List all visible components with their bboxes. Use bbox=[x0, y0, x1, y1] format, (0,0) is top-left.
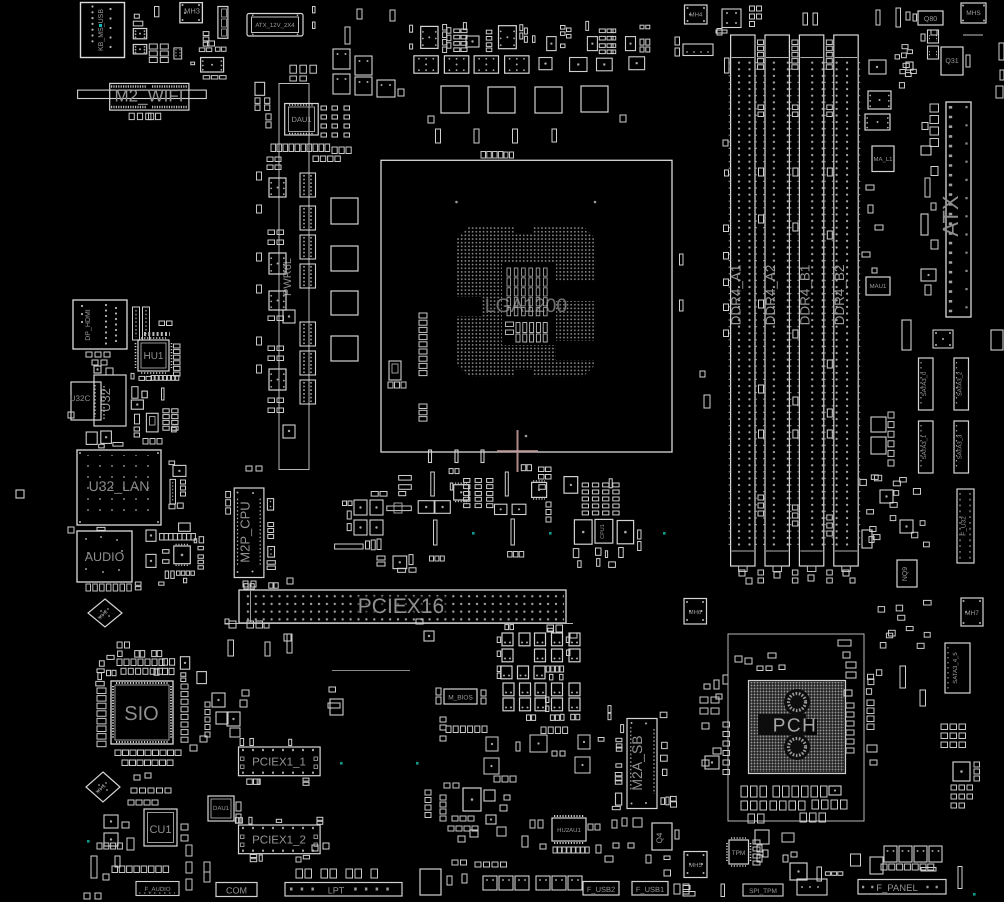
svg-text:COM: COM bbox=[226, 886, 247, 896]
svg-text:F_U32: F_U32 bbox=[961, 516, 968, 536]
svg-text:NQ9: NQ9 bbox=[902, 567, 909, 582]
svg-text:SIO: SIO bbox=[124, 703, 158, 725]
svg-text:MH7: MH7 bbox=[965, 610, 979, 617]
svg-text:M2P_CPU: M2P_CPU bbox=[238, 501, 253, 562]
svg-text:DAU1: DAU1 bbox=[213, 805, 230, 812]
svg-text:F_AUDIO: F_AUDIO bbox=[144, 886, 170, 893]
svg-text:F_USB1: F_USB1 bbox=[636, 885, 664, 894]
svg-text:DDR4_A1: DDR4_A1 bbox=[729, 265, 744, 326]
svg-text:DAU1: DAU1 bbox=[291, 115, 311, 124]
svg-text:F_USB2: F_USB2 bbox=[587, 885, 615, 894]
svg-text:M2_WIFI: M2_WIFI bbox=[115, 87, 184, 106]
svg-text:SPI_TPM: SPI_TPM bbox=[749, 888, 777, 895]
svg-text:TPM: TPM bbox=[732, 850, 746, 857]
svg-text:MHS: MHS bbox=[966, 10, 981, 17]
svg-text:LGA1200: LGA1200 bbox=[485, 295, 568, 317]
svg-text:Q31: Q31 bbox=[945, 58, 958, 65]
svg-text:U32C: U32C bbox=[70, 394, 91, 403]
svg-text:U32_LAN: U32_LAN bbox=[89, 478, 150, 494]
svg-text:PCIEX1_1: PCIEX1_1 bbox=[252, 757, 306, 769]
svg-text:MAU1: MAU1 bbox=[870, 283, 887, 290]
svg-text:DP_HDMI: DP_HDMI bbox=[85, 309, 92, 341]
svg-text:Q4: Q4 bbox=[655, 832, 664, 843]
svg-text:SATA3_0: SATA3_0 bbox=[921, 371, 928, 396]
svg-text:Q80: Q80 bbox=[924, 16, 937, 23]
svg-text:DDR4_A2: DDR4_A2 bbox=[763, 265, 778, 326]
svg-text:AUDIO: AUDIO bbox=[85, 550, 125, 564]
svg-text:MH5: MH5 bbox=[689, 862, 702, 869]
svg-text:SATA3_3: SATA3_3 bbox=[956, 434, 963, 459]
svg-text:PCIEX16: PCIEX16 bbox=[358, 595, 444, 618]
svg-text:MH4: MH4 bbox=[690, 12, 703, 19]
svg-text:M_BIOS: M_BIOS bbox=[448, 695, 473, 702]
svg-text:DDR4_B1: DDR4_B1 bbox=[797, 265, 812, 326]
svg-text:HU2AU1: HU2AU1 bbox=[557, 827, 581, 834]
svg-text:LPT: LPT bbox=[328, 886, 345, 896]
svg-text:SATA3_4_5: SATA3_4_5 bbox=[952, 652, 959, 684]
svg-text:U32: U32 bbox=[98, 388, 113, 412]
svg-text:HU1: HU1 bbox=[143, 351, 163, 362]
svg-text:DDR4_B2: DDR4_B2 bbox=[832, 265, 847, 326]
svg-text:F_PANEL: F_PANEL bbox=[876, 883, 918, 894]
svg-text:MH6: MH6 bbox=[689, 609, 702, 616]
svg-text:CPU1: CPU1 bbox=[600, 524, 606, 539]
svg-text:PCIEX1_2: PCIEX1_2 bbox=[252, 835, 306, 847]
svg-text:PCH: PCH bbox=[773, 716, 818, 737]
svg-text:ATX: ATX bbox=[938, 195, 963, 236]
svg-text:SATA3_1: SATA3_1 bbox=[921, 434, 928, 459]
svg-text:CU1: CU1 bbox=[149, 824, 171, 836]
svg-text:MH3: MH3 bbox=[184, 7, 200, 16]
svg-text:M2A_SB: M2A_SB bbox=[629, 735, 645, 790]
svg-text:ATX_12V_2X4: ATX_12V_2X4 bbox=[255, 22, 295, 29]
svg-text:MA_L1: MA_L1 bbox=[873, 156, 893, 163]
svg-text:KB_MS_USB: KB_MS_USB bbox=[98, 9, 105, 51]
svg-text:SATA3_2: SATA3_2 bbox=[956, 371, 963, 396]
